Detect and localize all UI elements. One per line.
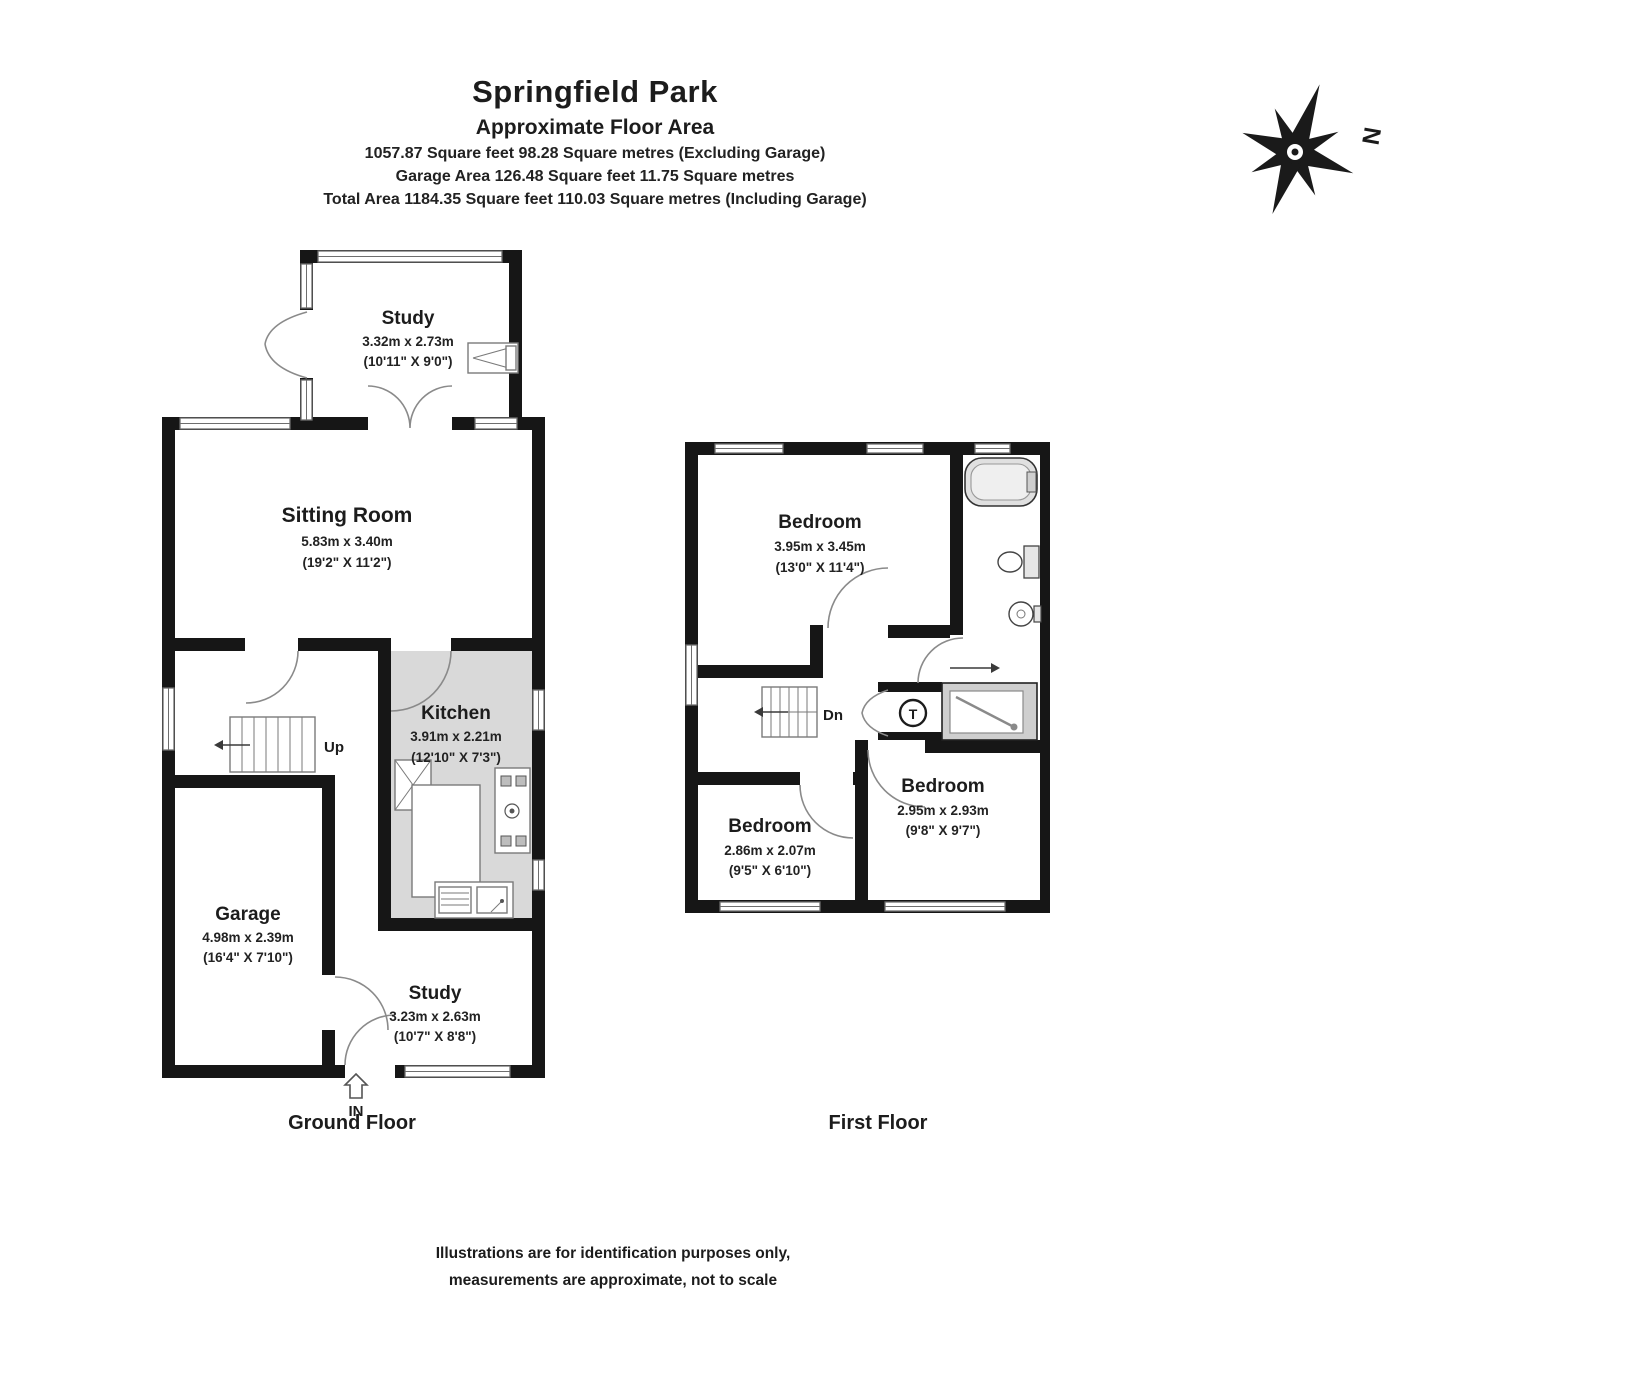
radiator <box>468 343 518 373</box>
bedroom-bottom-right-label: Bedroom 2.95m x 2.93m (9'8" X 9'7") <box>897 776 989 838</box>
stairs-up-label: Up <box>324 739 344 756</box>
window <box>405 1066 510 1077</box>
hall-door-arc <box>246 651 298 703</box>
svg-text:Bedroom: Bedroom <box>778 512 861 533</box>
window <box>533 690 544 730</box>
bedroom-bottom-left-label: Bedroom 2.86m x 2.07m (9'5" X 6'10") <box>724 816 816 878</box>
stairs-down-label: Dn <box>823 707 843 724</box>
bath-tub <box>965 458 1037 506</box>
kitchen-sink <box>435 882 513 918</box>
garage-door-arc <box>335 977 388 1030</box>
first-floor-caption: First Floor <box>829 1112 928 1135</box>
svg-text:3.23m x 2.63m: 3.23m x 2.63m <box>389 1009 481 1024</box>
svg-text:2.86m x 2.07m: 2.86m x 2.07m <box>724 843 816 858</box>
first-floor-door-openings <box>800 625 963 785</box>
svg-text:(12'10" X 7'3"): (12'10" X 7'3") <box>411 750 501 765</box>
window <box>301 264 312 308</box>
svg-text:2.95m x 2.93m: 2.95m x 2.93m <box>897 803 989 818</box>
tank-cupboard: T <box>900 700 926 726</box>
window <box>686 645 697 705</box>
garage-label: Garage 4.98m x 2.39m (16'4" X 7'10") <box>202 904 294 965</box>
north-label: N <box>1356 125 1386 147</box>
svg-text:Sitting Room: Sitting Room <box>282 504 413 527</box>
window <box>318 251 502 262</box>
tank-label: T <box>909 706 918 722</box>
svg-text:(10'11" X 9'0"): (10'11" X 9'0") <box>363 354 452 369</box>
floor-area-subtitle: Approximate Floor Area <box>0 116 1190 140</box>
svg-text:(16'4" X 7'10"): (16'4" X 7'10") <box>203 950 293 965</box>
bedroom-top-label: Bedroom 3.95m x 3.45m (13'0" X 11'4") <box>774 512 866 575</box>
svg-text:Garage: Garage <box>215 904 280 925</box>
svg-text:5.83m x 3.40m: 5.83m x 3.40m <box>301 534 393 549</box>
floorplan-page: Springfield Park Approximate Floor Area … <box>0 0 1648 1392</box>
window <box>867 444 923 453</box>
cupboard-door-arc <box>862 690 888 736</box>
disclaimer-line-1: Illustrations are for identification pur… <box>436 1240 791 1267</box>
ground-floor-caption: Ground Floor <box>288 1112 416 1135</box>
svg-text:(19'2" X 11'2"): (19'2" X 11'2") <box>302 555 391 570</box>
kitchen-island <box>412 785 480 897</box>
window <box>720 902 820 911</box>
svg-text:Kitchen: Kitchen <box>421 703 491 724</box>
area-line-3: Total Area 1184.35 Square feet 110.03 Sq… <box>0 191 1190 209</box>
window <box>475 418 517 429</box>
disclaimer: Illustrations are for identification pur… <box>436 1240 791 1294</box>
svg-text:(13'0" X 11'4"): (13'0" X 11'4") <box>775 560 864 575</box>
header: Springfield Park Approximate Floor Area … <box>0 74 1190 209</box>
first-floor-plan: Dn T <box>650 400 1050 920</box>
toilet <box>998 546 1039 578</box>
svg-text:3.32m x 2.73m: 3.32m x 2.73m <box>362 334 454 349</box>
window <box>975 444 1010 453</box>
bedroom-top-door-arc <box>828 568 888 628</box>
svg-text:(9'5" X 6'10"): (9'5" X 6'10") <box>729 863 811 878</box>
first-floor-doors <box>800 568 963 838</box>
compass-rose: N <box>1210 60 1430 240</box>
window <box>163 688 174 750</box>
svg-text:(10'7" X 8'8"): (10'7" X 8'8") <box>394 1029 476 1044</box>
svg-text:Study: Study <box>382 308 435 329</box>
area-line-2: Garage Area 126.48 Square feet 11.75 Squ… <box>0 168 1190 186</box>
stairs-up <box>214 717 315 772</box>
study-bottom-label: Study 3.23m x 2.63m (10'7" X 8'8") <box>389 983 481 1044</box>
window <box>180 418 290 429</box>
sink <box>1009 602 1041 626</box>
svg-text:3.91m x 2.21m: 3.91m x 2.21m <box>410 729 502 744</box>
svg-text:4.98m x 2.39m: 4.98m x 2.39m <box>202 930 294 945</box>
sitting-room-label: Sitting Room 5.83m x 3.40m (19'2" X 11'2… <box>282 504 413 570</box>
kitchen-label: Kitchen 3.91m x 2.21m (12'10" X 7'3") <box>410 703 502 765</box>
window <box>301 380 312 420</box>
compass-star <box>1220 65 1378 235</box>
study-top-label: Study 3.32m x 2.73m (10'11" X 9'0") <box>362 308 454 369</box>
page-title: Springfield Park <box>0 74 1190 110</box>
window <box>533 860 544 890</box>
svg-text:Bedroom: Bedroom <box>901 776 984 797</box>
hob <box>495 768 530 853</box>
svg-text:(9'8" X 9'7"): (9'8" X 9'7") <box>906 823 981 838</box>
window <box>885 902 1005 911</box>
svg-text:Bedroom: Bedroom <box>728 816 811 837</box>
disclaimer-line-2: measurements are approximate, not to sca… <box>436 1267 791 1294</box>
window <box>715 444 783 453</box>
ground-floor-plan: Up <box>150 240 570 1120</box>
svg-text:Study: Study <box>409 983 462 1004</box>
stairs-down <box>754 687 817 737</box>
area-line-1: 1057.87 Square feet 98.28 Square metres … <box>0 145 1190 163</box>
svg-text:3.95m x 3.45m: 3.95m x 3.45m <box>774 539 866 554</box>
